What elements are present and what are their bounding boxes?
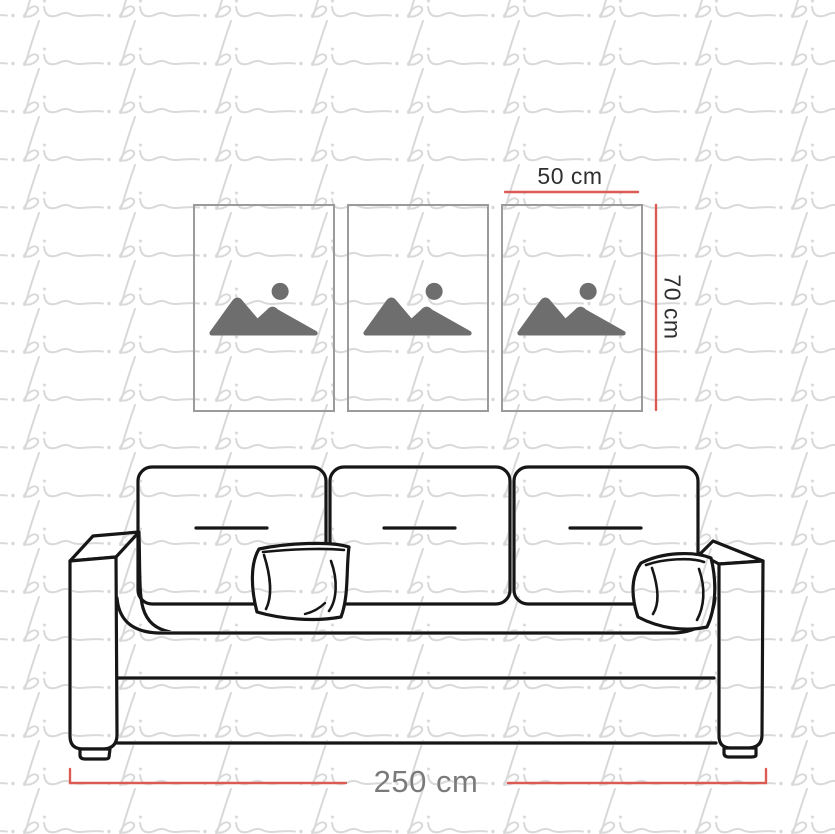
product-dimension-diagram: 50 cm 70 cm 250 cm bbox=[0, 0, 835, 834]
sofa-width-label: 250 cm bbox=[346, 764, 506, 800]
sofa-width-line-left bbox=[70, 769, 346, 783]
frame-width-label: 50 cm bbox=[502, 163, 638, 190]
sofa-width-line-right bbox=[508, 769, 766, 783]
frame-height-label: 70 cm bbox=[659, 274, 686, 339]
dimension-lines bbox=[0, 0, 835, 834]
